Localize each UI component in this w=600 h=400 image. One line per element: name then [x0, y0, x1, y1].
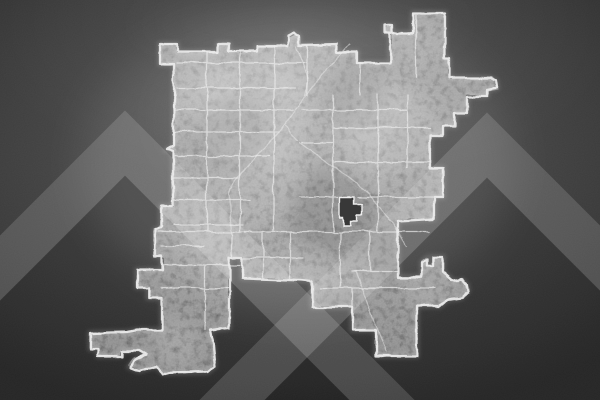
- shading-patch: [190, 95, 270, 175]
- chalkboard: [0, 0, 600, 400]
- city-map-svg: [0, 0, 600, 400]
- shading-patch: [320, 60, 390, 130]
